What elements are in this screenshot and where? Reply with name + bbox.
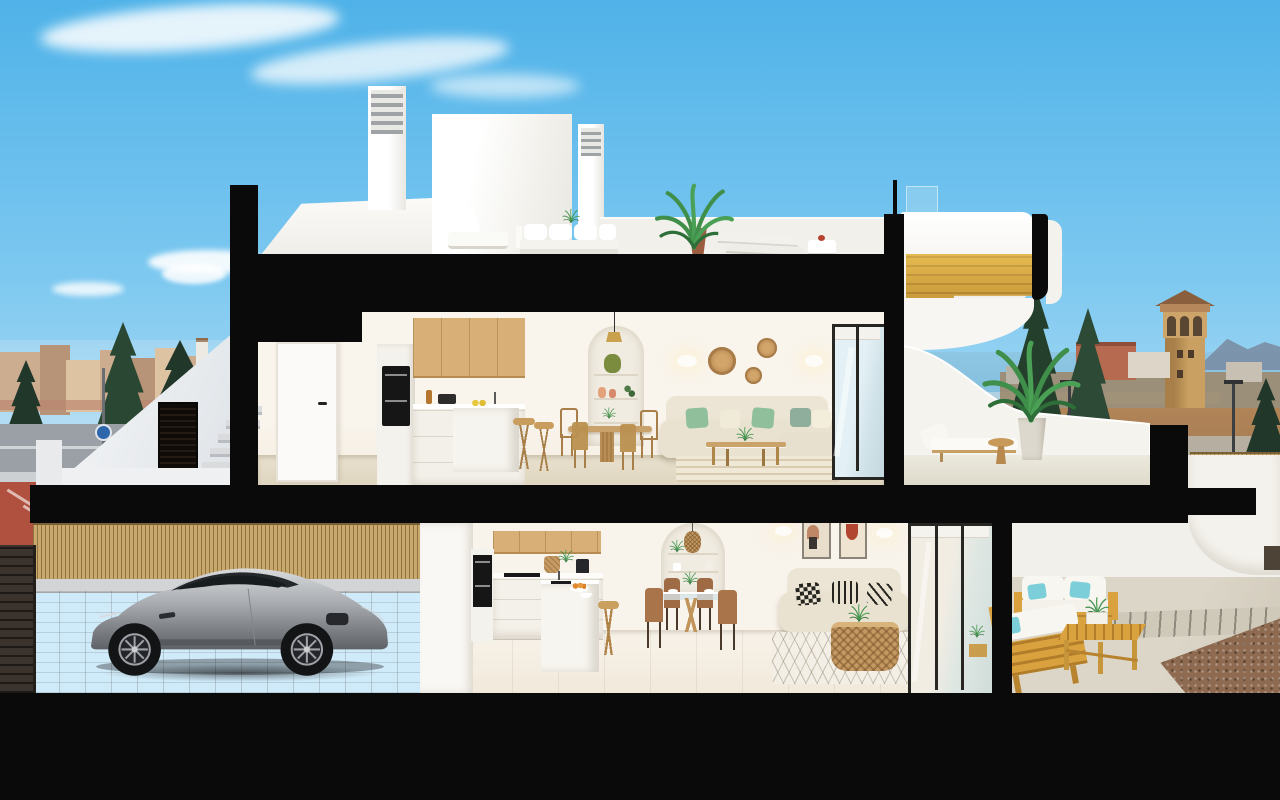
low-building	[1226, 362, 1262, 382]
roof-outdoor-sofa	[516, 222, 622, 254]
table-leg	[712, 447, 715, 465]
glass-reflection	[912, 542, 932, 682]
sofa-cushion	[574, 224, 597, 240]
wall-sconce	[775, 526, 792, 536]
side-table	[988, 438, 1014, 466]
white-pot	[705, 563, 713, 571]
coffee-machine	[576, 559, 589, 574]
car-headlight	[100, 613, 118, 617]
trailing-plant	[622, 384, 636, 400]
lounger-leg	[940, 453, 943, 462]
kitchen-upper-cabinets	[493, 531, 601, 554]
table-plate	[704, 589, 714, 593]
wall-sconce	[876, 528, 893, 538]
lemons	[470, 400, 488, 406]
throw-pillow	[751, 407, 775, 429]
table-pedestal	[600, 432, 614, 462]
table-leg	[762, 449, 765, 466]
throw-pillow	[812, 410, 831, 428]
stair-enclosure-edge	[1046, 220, 1062, 304]
planter-box-greens	[556, 208, 586, 224]
oven-handle	[385, 374, 407, 376]
garage-door	[0, 545, 36, 693]
patio-table	[1058, 616, 1146, 676]
table-leg	[1064, 640, 1069, 670]
table-leg	[726, 449, 729, 466]
oven-handle	[475, 585, 490, 587]
wall-art	[839, 517, 867, 559]
dining-chair	[572, 422, 590, 468]
niche-shelf	[594, 374, 638, 376]
car-front-wheel	[108, 623, 161, 676]
cut-wall-lower-right	[992, 505, 1012, 695]
garden-doorway	[1264, 546, 1280, 570]
throw-pillow	[795, 582, 821, 606]
stool-legs	[600, 609, 617, 655]
door-mullion	[961, 526, 964, 690]
peach-vase	[609, 389, 616, 398]
wall-sconce	[677, 355, 697, 367]
white-pot	[673, 563, 681, 571]
sofa-cushion	[549, 224, 572, 240]
sofa-seat	[520, 240, 618, 249]
chair-back	[620, 424, 636, 452]
tower-arch	[1193, 316, 1202, 336]
kitchen-island	[453, 404, 519, 472]
car-rear-intake	[326, 613, 348, 625]
island-faucet	[494, 392, 496, 404]
oven-handle	[475, 561, 490, 563]
cooktop	[504, 573, 540, 577]
side-table-top	[988, 438, 1014, 447]
counter-pot	[438, 394, 456, 404]
table-leg	[1132, 640, 1137, 670]
double-oven	[473, 555, 492, 607]
throw-pillow	[685, 407, 708, 428]
table-leg	[1098, 642, 1103, 674]
counter-plant	[558, 547, 574, 565]
dining-chair	[645, 588, 665, 650]
cloud	[162, 264, 226, 284]
cut-terrace-cap	[1150, 425, 1188, 523]
table-plant	[602, 404, 616, 422]
cut-wall-living-right	[884, 214, 904, 488]
dining-chair	[640, 410, 656, 458]
tower-arch	[1167, 316, 1176, 336]
seen-through-plant	[969, 622, 985, 640]
table-plate	[668, 589, 678, 593]
table-leg	[776, 447, 779, 465]
red-dessert	[818, 235, 825, 241]
cut-stair-cap	[1032, 214, 1048, 300]
vent-grille	[581, 128, 601, 156]
throw-pillow	[832, 581, 858, 604]
side-wall	[420, 523, 473, 693]
chair-back	[645, 588, 663, 622]
lower-floor-interior	[420, 523, 992, 693]
planter	[1086, 612, 1108, 625]
basket-plant	[848, 603, 870, 623]
blind-box	[911, 526, 989, 538]
cut-wall-left	[230, 185, 258, 523]
rattan-pendant-cord	[692, 523, 693, 531]
cut-roof-slab	[256, 254, 904, 312]
wall-sconce	[805, 355, 823, 367]
balustrade-post	[893, 180, 897, 216]
glass-reflection	[833, 347, 854, 457]
chair-legs	[574, 450, 586, 468]
chair-legs	[647, 622, 661, 648]
bar-stool-legs	[515, 425, 533, 469]
sports-car	[88, 554, 392, 680]
built-in-oven	[382, 366, 410, 426]
table-plant	[682, 565, 698, 591]
sofa-cushion	[599, 224, 616, 240]
pendant-light	[606, 332, 622, 342]
oranges	[572, 583, 586, 589]
chair-legs	[641, 436, 653, 458]
door-mullion	[935, 526, 938, 690]
street-lamp-head	[1224, 380, 1243, 384]
tower-window	[1177, 370, 1183, 378]
leg	[1013, 675, 1022, 694]
tower-window	[1177, 350, 1183, 358]
dining-chair	[718, 590, 739, 652]
tower-window	[1188, 350, 1194, 358]
bar-stool-legs	[536, 429, 552, 471]
art-shape	[846, 524, 858, 540]
coffee-table	[706, 440, 786, 468]
wicker-wall-basket	[708, 347, 736, 375]
basket-coffee-table	[831, 622, 899, 671]
wood-stool	[598, 601, 619, 609]
tower-cap	[1160, 304, 1210, 312]
wall-art	[802, 519, 831, 559]
counter-bottle	[426, 390, 432, 404]
wicker-wall-basket	[745, 367, 762, 384]
sliding-glass-doors	[908, 523, 998, 699]
car-rear-wheel	[281, 623, 334, 676]
island-sink	[551, 581, 571, 584]
chair-legs	[720, 624, 735, 650]
oven-handle	[385, 400, 407, 402]
roof-lounge-seat	[448, 232, 508, 249]
sofa-cushion	[524, 224, 547, 240]
wicker-wall-basket	[757, 338, 777, 358]
vent-grille	[371, 90, 403, 134]
potted-palm	[972, 336, 1090, 428]
table-legs	[666, 598, 716, 632]
dining-chair	[620, 424, 638, 470]
table-plant	[736, 426, 754, 442]
pendant-light-cord	[614, 312, 615, 334]
chair-back	[718, 590, 737, 624]
sliding-glass-door	[832, 324, 889, 480]
villa-cross-section-render	[0, 0, 1280, 800]
cut-bulkhead	[256, 312, 362, 342]
niche-shelf	[668, 553, 718, 555]
table-top	[1058, 624, 1146, 640]
chair-back	[572, 422, 588, 450]
table-top	[706, 442, 786, 447]
tower-arch	[1180, 316, 1189, 336]
base-plinth	[0, 693, 1280, 800]
art-shape	[809, 537, 817, 549]
interior-door	[276, 342, 338, 482]
cloud	[52, 282, 124, 296]
garden-wall	[36, 440, 62, 490]
seen-through-bench	[969, 644, 987, 657]
green-vase	[604, 354, 621, 373]
roof-side-table	[808, 240, 836, 255]
kitchen-upper-cabinets	[413, 318, 525, 378]
tower-arcade	[1163, 312, 1207, 338]
peach-vase	[598, 387, 606, 398]
niche-plant	[669, 539, 685, 553]
bar-stool	[513, 418, 535, 425]
rattan-pendant	[684, 531, 701, 553]
door-handle	[318, 402, 327, 405]
cloud	[430, 74, 580, 98]
throw-pillow	[790, 408, 811, 427]
chair-legs	[622, 452, 634, 470]
door-mullion	[856, 327, 859, 471]
side-table-base	[996, 446, 1006, 464]
cut-mid-slab	[30, 485, 1150, 523]
bar-stool	[534, 422, 554, 429]
